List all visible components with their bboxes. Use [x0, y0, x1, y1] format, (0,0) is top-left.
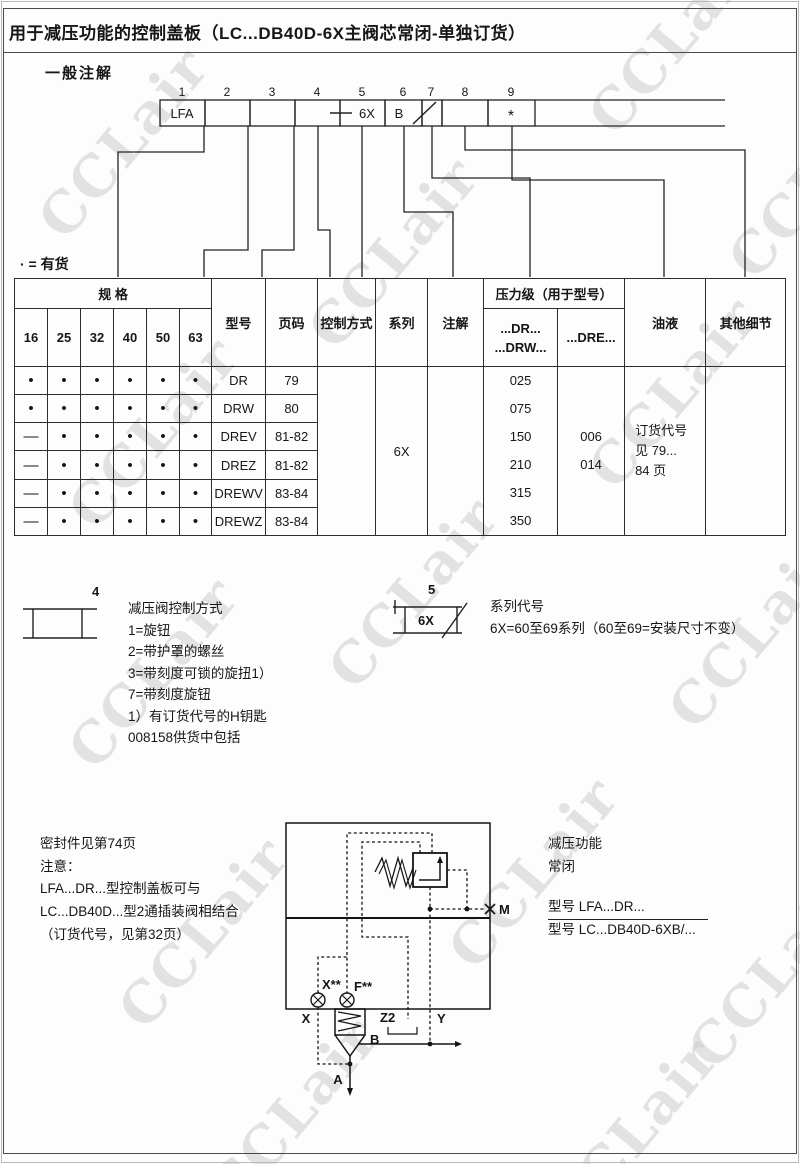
availability-mark: • — [114, 423, 147, 451]
footnote-line: 3=带刻度可锁的旋扭1） — [128, 663, 272, 685]
port-label-b: B — [370, 1032, 379, 1047]
port-label-f-plug: F** — [354, 979, 373, 994]
code-value-lfa: LFA — [170, 106, 193, 121]
footnote-line: 1=旋钮 — [128, 620, 272, 642]
availability-mark: • — [114, 507, 147, 535]
port-label-a: A — [333, 1072, 343, 1087]
table-row: • • • • • • DR 79 6X 025 075 150 210 315… — [15, 367, 786, 395]
other-cell — [706, 367, 786, 536]
model-designation-top: 型号 LFA...DR... — [548, 895, 708, 920]
note-line: LC...DB40D...型2通插装阀相结合 — [40, 901, 239, 924]
code-position-9: 9 — [508, 85, 515, 99]
cover-outline — [286, 823, 490, 1009]
code-value-b: B — [395, 106, 404, 121]
page-cell: 81-82 — [266, 451, 318, 479]
footnote-line: 7=带刻度旋钮 — [128, 684, 272, 706]
code-value-star: * — [508, 108, 514, 125]
model-cell: DREV — [212, 423, 266, 451]
note-line: 密封件见第74页 — [40, 833, 239, 856]
footnote-4-number: 4 — [92, 584, 99, 599]
footnote-5-text: 系列代号 6X=60至69系列（60至69=安装尺寸不变） — [490, 596, 744, 639]
page-cell: 83-84 — [266, 507, 318, 535]
availability-mark: • — [81, 479, 114, 507]
page-cell: 79 — [266, 367, 318, 395]
note-cell — [428, 367, 484, 536]
header-control: 控制方式 — [318, 279, 376, 367]
hydraulic-circuit-diagram: M X** F** X Y Z2 B A — [270, 810, 550, 1100]
seal-notes: 密封件见第74页 注意： LFA...DR...型控制盖板可与 LC...DB4… — [40, 833, 239, 947]
header-size-40: 40 — [114, 309, 147, 367]
code-position-5: 5 — [359, 85, 366, 99]
footnote-line: 2=带护罩的螺丝 — [128, 641, 272, 663]
availability-mark: • — [147, 451, 180, 479]
availability-mark: • — [81, 367, 114, 395]
code-box-6 — [385, 100, 422, 126]
pressure-dr-line2: ...DRW... — [484, 338, 557, 357]
availability-mark: • — [48, 507, 81, 535]
code-position-7: 7 — [428, 85, 435, 99]
availability-mark: • — [180, 479, 212, 507]
code-position-4: 4 — [314, 85, 321, 99]
dre-value: 014 — [558, 451, 624, 479]
code-box-3 — [250, 100, 295, 126]
pressure-dr-line1: ...DR... — [484, 319, 557, 338]
fluid-cell: 订货代号 见 79... 84 页 — [625, 367, 706, 536]
availability-mark: • — [81, 423, 114, 451]
header-size-63: 63 — [180, 309, 212, 367]
series-symbol-text: 6X — [418, 613, 434, 628]
pressure-value: 075 — [484, 395, 557, 423]
availability-mark: • — [180, 451, 212, 479]
footnote-line: 1）有订货代号的H钥匙 — [128, 706, 272, 728]
code-position-6: 6 — [400, 85, 407, 99]
header-size-50: 50 — [147, 309, 180, 367]
code-position-2: 2 — [224, 85, 231, 99]
header-size-25: 25 — [48, 309, 81, 367]
port-label-x: X — [302, 1011, 311, 1026]
availability-mark: • — [81, 507, 114, 535]
model-designation-bottom: 型号 LC...DB40D-6XB/... — [548, 918, 696, 938]
fluid-note-line: 订货代号 — [635, 421, 705, 441]
pressure-value: 210 — [484, 451, 557, 479]
code-position-1: 1 — [179, 85, 186, 99]
code-box-2 — [205, 100, 250, 126]
code-box-8 — [442, 100, 488, 126]
header-other: 其他细节 — [706, 279, 786, 367]
page-title: 用于减压功能的控制盖板（LC...DB40D-6X主阀芯常闭-单独订货） — [9, 19, 526, 44]
availability-mark: • — [48, 451, 81, 479]
footnote-line: 6X=60至69系列（60至69=安装尺寸不变） — [490, 618, 744, 640]
footnote-line: 008158供货中包括 — [128, 727, 272, 749]
header-note: 注解 — [428, 279, 484, 367]
availability-mark: — — [15, 423, 48, 451]
note-line: LFA...DR...型控制盖板可与 — [40, 878, 239, 901]
cartridge-spring-icon — [338, 1012, 361, 1031]
pressure-dre-cell: 006 014 — [558, 367, 625, 536]
header-fluid: 油液 — [625, 279, 706, 367]
availability-mark: • — [114, 367, 147, 395]
model-cell: DREWV — [212, 479, 266, 507]
header-pressure-dre: ...DRE... — [558, 309, 625, 367]
code-row-extension-lines — [535, 100, 725, 126]
page-cell: 83-84 — [266, 479, 318, 507]
control-cell — [318, 367, 376, 536]
availability-mark: • — [81, 451, 114, 479]
fluid-note-line: 84 页 — [635, 461, 705, 481]
dre-value — [558, 479, 624, 507]
availability-mark: • — [114, 451, 147, 479]
slash-mark — [413, 102, 436, 124]
availability-mark: • — [147, 395, 180, 423]
availability-mark: • — [114, 395, 147, 423]
header-size-16: 16 — [15, 309, 48, 367]
page-cell: 81-82 — [266, 423, 318, 451]
series-cell: 6X — [376, 367, 428, 536]
availability-mark: • — [48, 423, 81, 451]
code-value-6x: 6X — [359, 106, 375, 121]
note-line: （订货代号，见第32页） — [40, 924, 239, 947]
availability-mark: — — [15, 479, 48, 507]
cartridge-poppet-icon — [335, 1035, 365, 1056]
dre-value — [558, 367, 624, 395]
header-pressure-dr: ...DR... ...DRW... — [484, 309, 558, 367]
footnote-line: 系列代号 — [490, 596, 744, 618]
selection-table: 规 格 型号 页码 控制方式 系列 注解 压力级（用于型号） 油液 其他细节 1… — [14, 278, 786, 536]
dre-value — [558, 395, 624, 423]
availability-mark: — — [15, 451, 48, 479]
pressure-value: 350 — [484, 507, 557, 535]
model-cell: DREZ — [212, 451, 266, 479]
availability-mark: • — [180, 423, 212, 451]
availability-mark: • — [81, 395, 114, 423]
note-line: 减压功能 — [548, 833, 602, 856]
availability-mark: • — [180, 395, 212, 423]
dre-value — [558, 507, 624, 535]
port-label-m: M — [499, 902, 510, 917]
availability-mark: • — [15, 395, 48, 423]
footnote-4-text: 减压阀控制方式 1=旋钮 2=带护罩的螺丝 3=带刻度可锁的旋扭1） 7=带刻度… — [128, 598, 272, 749]
pressure-value: 315 — [484, 479, 557, 507]
availability-mark: • — [147, 479, 180, 507]
control-symbol-4 — [20, 600, 110, 648]
catalog-page: CCLair CCLair CCLair CCLair CCLair CCLai… — [0, 0, 800, 1164]
availability-mark: • — [147, 367, 180, 395]
function-notes: 减压功能 常闭 — [548, 833, 602, 878]
page-cell: 80 — [266, 395, 318, 423]
code-position-8: 8 — [462, 85, 469, 99]
series-symbol-5: 6X — [390, 598, 475, 642]
dre-value: 006 — [558, 423, 624, 451]
availability-mark: • — [180, 367, 212, 395]
pilot-valve-flowpath — [419, 860, 440, 880]
ordering-code-diagram: 1 2 3 4 5 6 7 8 9 LFA 6X B * — [0, 80, 800, 280]
arrowhead-icon — [437, 856, 443, 863]
note-line: 注意： — [40, 856, 239, 879]
note-line: 常闭 — [548, 856, 602, 879]
footnote-5-number: 5 — [428, 582, 435, 597]
availability-mark: • — [15, 367, 48, 395]
pressure-value: 150 — [484, 423, 557, 451]
fluid-note-line: 见 79... — [635, 441, 705, 461]
pressure-value: 025 — [484, 367, 557, 395]
port-label-x-plug: X** — [322, 977, 342, 992]
code-connector-lines — [118, 126, 745, 277]
model-cell: DREWZ — [212, 507, 266, 535]
port-label-z2: Z2 — [380, 1010, 395, 1025]
arrowhead-icon — [347, 1088, 353, 1096]
availability-mark: • — [48, 479, 81, 507]
footnote-line: 减压阀控制方式 — [128, 598, 272, 620]
header-model: 型号 — [212, 279, 266, 367]
availability-mark: • — [147, 423, 180, 451]
pressure-dr-cell: 025 075 150 210 315 350 — [484, 367, 558, 536]
header-size-32: 32 — [81, 309, 114, 367]
code-position-3: 3 — [269, 85, 276, 99]
arrowhead-icon — [455, 1041, 462, 1047]
spring-icon — [375, 858, 413, 886]
title-strip: 用于减压功能的控制盖板（LC...DB40D-6X主阀芯常闭-单独订货） — [3, 8, 797, 53]
header-series: 系列 — [376, 279, 428, 367]
availability-mark: — — [15, 507, 48, 535]
model-cell: DR — [212, 367, 266, 395]
model-cell: DRW — [212, 395, 266, 423]
header-pressure-group: 压力级（用于型号） — [484, 279, 625, 309]
availability-mark: • — [48, 367, 81, 395]
availability-mark: • — [48, 395, 81, 423]
availability-mark: • — [114, 479, 147, 507]
z2-bracket-icon — [388, 1027, 417, 1034]
pilot-valve-symbol — [413, 853, 447, 887]
header-sizes-group: 规 格 — [15, 279, 212, 309]
header-page: 页码 — [266, 279, 318, 367]
availability-mark: • — [147, 507, 180, 535]
port-label-y: Y — [437, 1011, 446, 1026]
availability-mark: • — [180, 507, 212, 535]
